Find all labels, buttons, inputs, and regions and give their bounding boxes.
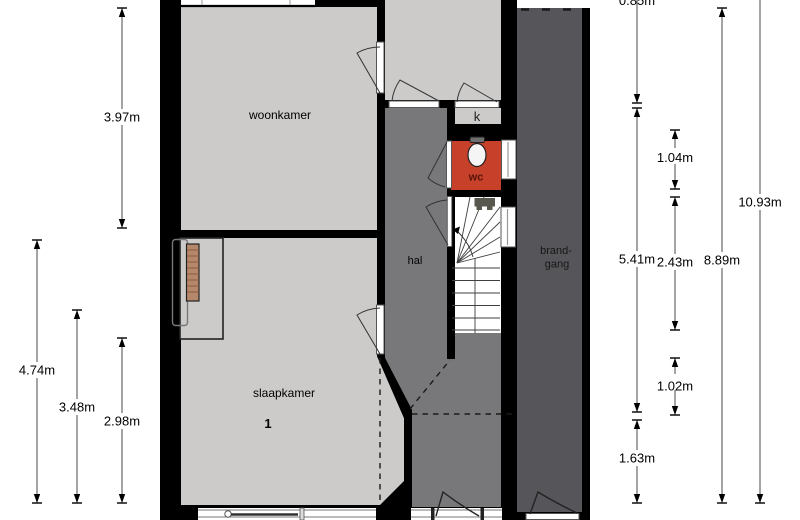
svg-text:woonkamer: woonkamer [248,108,311,122]
svg-text:3.97m: 3.97m [104,110,140,125]
svg-text:10.93m: 10.93m [738,195,781,210]
svg-text:2.98m: 2.98m [104,414,140,429]
svg-text:1.02m: 1.02m [657,379,693,394]
svg-text:1: 1 [264,416,271,431]
svg-text:hal: hal [408,255,423,267]
svg-text:8.89m: 8.89m [704,253,740,268]
svg-text:0.85m: 0.85m [619,0,655,8]
svg-text:brand-: brand- [540,245,572,257]
svg-text:5.41m: 5.41m [619,252,655,267]
svg-text:slaapkamer: slaapkamer [253,386,315,400]
svg-text:2.43m: 2.43m [657,255,693,270]
svg-text:1.04m: 1.04m [657,150,693,165]
svg-text:3.48m: 3.48m [59,400,95,415]
svg-text:wc: wc [468,172,484,184]
svg-text:1.63m: 1.63m [619,451,655,466]
svg-text:k: k [474,109,481,124]
svg-text:gang: gang [545,259,569,271]
svg-text:4.74m: 4.74m [19,363,55,378]
